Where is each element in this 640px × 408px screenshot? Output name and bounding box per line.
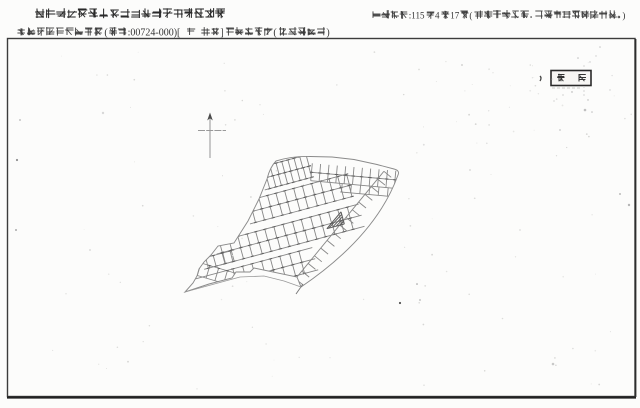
svg-text::115: :115: [409, 11, 425, 21]
svg-text:]: ]: [220, 28, 223, 39]
svg-text::00724-000)[: :00724-000)[: [128, 28, 181, 39]
svg-text:17: 17: [450, 11, 460, 21]
svg-text:(: (: [469, 11, 472, 21]
svg-text:): ): [326, 28, 329, 39]
svg-text:): ): [622, 11, 625, 21]
svg-text:4: 4: [435, 11, 440, 21]
